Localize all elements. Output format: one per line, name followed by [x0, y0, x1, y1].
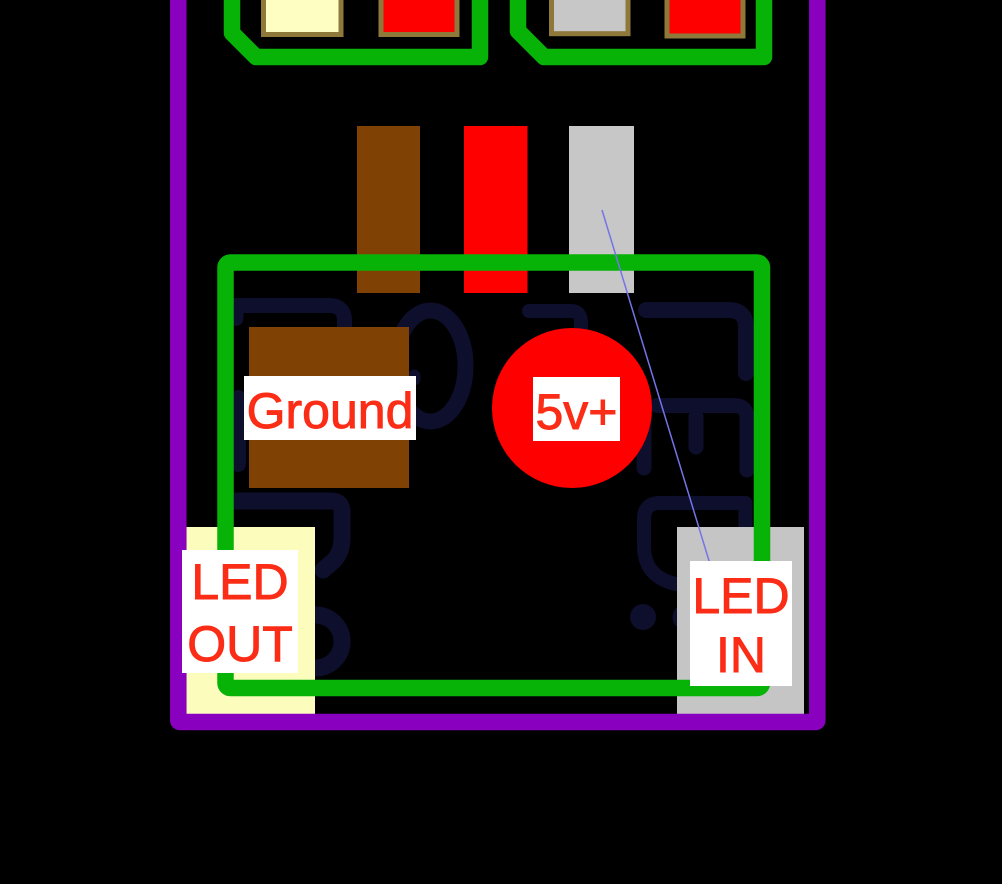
- svg-text:Ground: Ground: [247, 383, 414, 439]
- svg-text:OUT: OUT: [187, 616, 293, 672]
- svg-text:5v+: 5v+: [535, 384, 617, 440]
- svg-text:LED: LED: [191, 554, 288, 610]
- svg-text:LED: LED: [692, 568, 789, 624]
- svg-text:IN: IN: [716, 627, 766, 683]
